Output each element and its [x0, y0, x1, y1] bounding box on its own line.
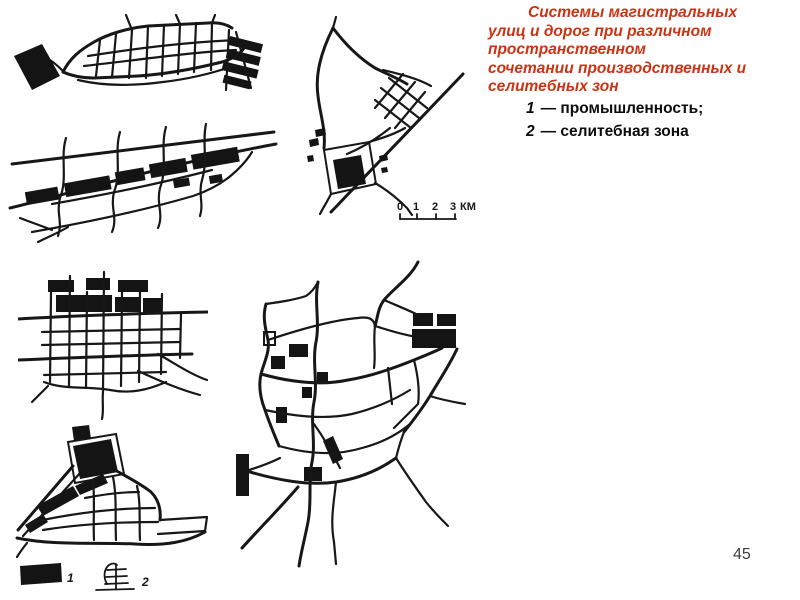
title-line: Системы магистральных: [488, 4, 784, 23]
legend-label: — селитебная зона: [541, 123, 689, 140]
scale-tick-0: 0: [397, 201, 403, 213]
slide-title: Системы магистральных улиц и дорог при р…: [488, 4, 784, 97]
industry-zone-shape: [333, 155, 366, 189]
page-number: 45: [733, 546, 751, 564]
title-line: пространственном: [488, 41, 784, 60]
legend-number: 1: [526, 100, 535, 117]
legend-number: 2: [526, 123, 535, 140]
scale-unit: КМ: [460, 201, 476, 213]
scale-bar: 0 1 2 3 КМ: [392, 192, 492, 224]
title-line: сочетании производственных и: [488, 60, 784, 79]
linear-city-map-image: [8, 14, 270, 118]
slide: 0 1 2 3 КМ: [0, 0, 800, 600]
industry-zone-shape: [14, 44, 60, 90]
compact-diagonal-city-map-image: [295, 16, 475, 218]
sprawling-city-map-image: [228, 256, 468, 568]
title-line: селитебных зон: [488, 78, 784, 97]
industry-key-number: 1: [67, 571, 74, 585]
scale-tick-2: 2: [432, 201, 438, 213]
triangular-city-map-image: [15, 422, 215, 568]
residential-key-symbol: [96, 564, 134, 591]
legend-item-industry: 1— промышленность;: [526, 97, 703, 120]
industry-key-symbol: [20, 563, 62, 585]
text-legend: 1— промышленность; 2— селитебная зона: [526, 97, 703, 143]
grid-city-map-image: [18, 262, 208, 424]
figure-key: 1 2: [12, 556, 182, 598]
legend-item-residential: 2— селитебная зона: [526, 120, 703, 143]
scale-tick-3: 3: [450, 201, 456, 213]
scale-tick-1: 1: [413, 201, 419, 213]
title-line: улиц и дорог при различном: [488, 23, 784, 42]
legend-label: — промышленность;: [541, 100, 704, 117]
industrial-band-city-map-image: [8, 122, 278, 246]
residential-key-number: 2: [141, 575, 149, 589]
